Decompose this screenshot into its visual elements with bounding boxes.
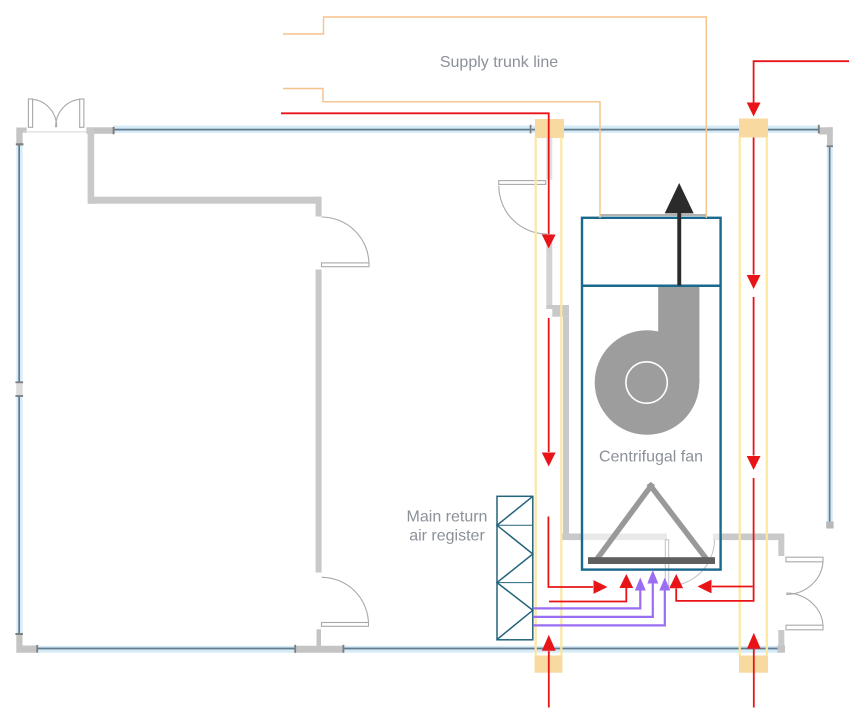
- svg-text:air register: air register: [409, 528, 485, 545]
- svg-text:Centrifugal fan: Centrifugal fan: [599, 449, 703, 466]
- svg-text:Main return: Main return: [407, 509, 488, 526]
- svg-text:Supply trunk line: Supply trunk line: [440, 54, 558, 71]
